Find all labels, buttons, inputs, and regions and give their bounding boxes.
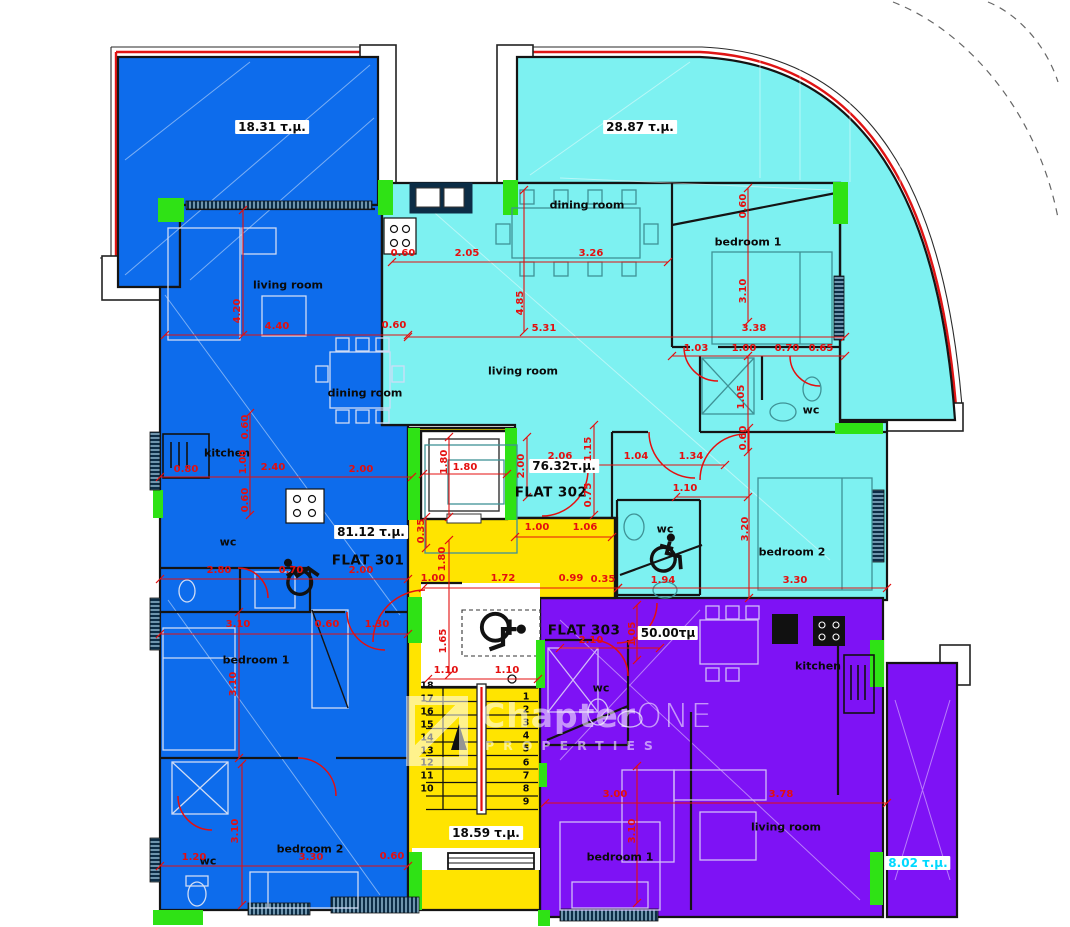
entrance-vestibule	[421, 583, 540, 687]
flat-301-region	[118, 57, 408, 910]
stove-303	[813, 616, 845, 646]
stove-301	[286, 489, 324, 523]
stairs-window	[448, 853, 534, 869]
sink-unit-303	[772, 614, 798, 644]
floor-plan-drawing	[0, 0, 1070, 927]
flat-303-region	[540, 598, 957, 917]
floor-plan-stage: 18.31 τ.μ.28.87 τ.μ.81.12 τ.μ.76.32τ.μ.5…	[0, 0, 1070, 927]
site-boundary-arcs	[893, 2, 1058, 218]
stove-302	[384, 218, 416, 254]
